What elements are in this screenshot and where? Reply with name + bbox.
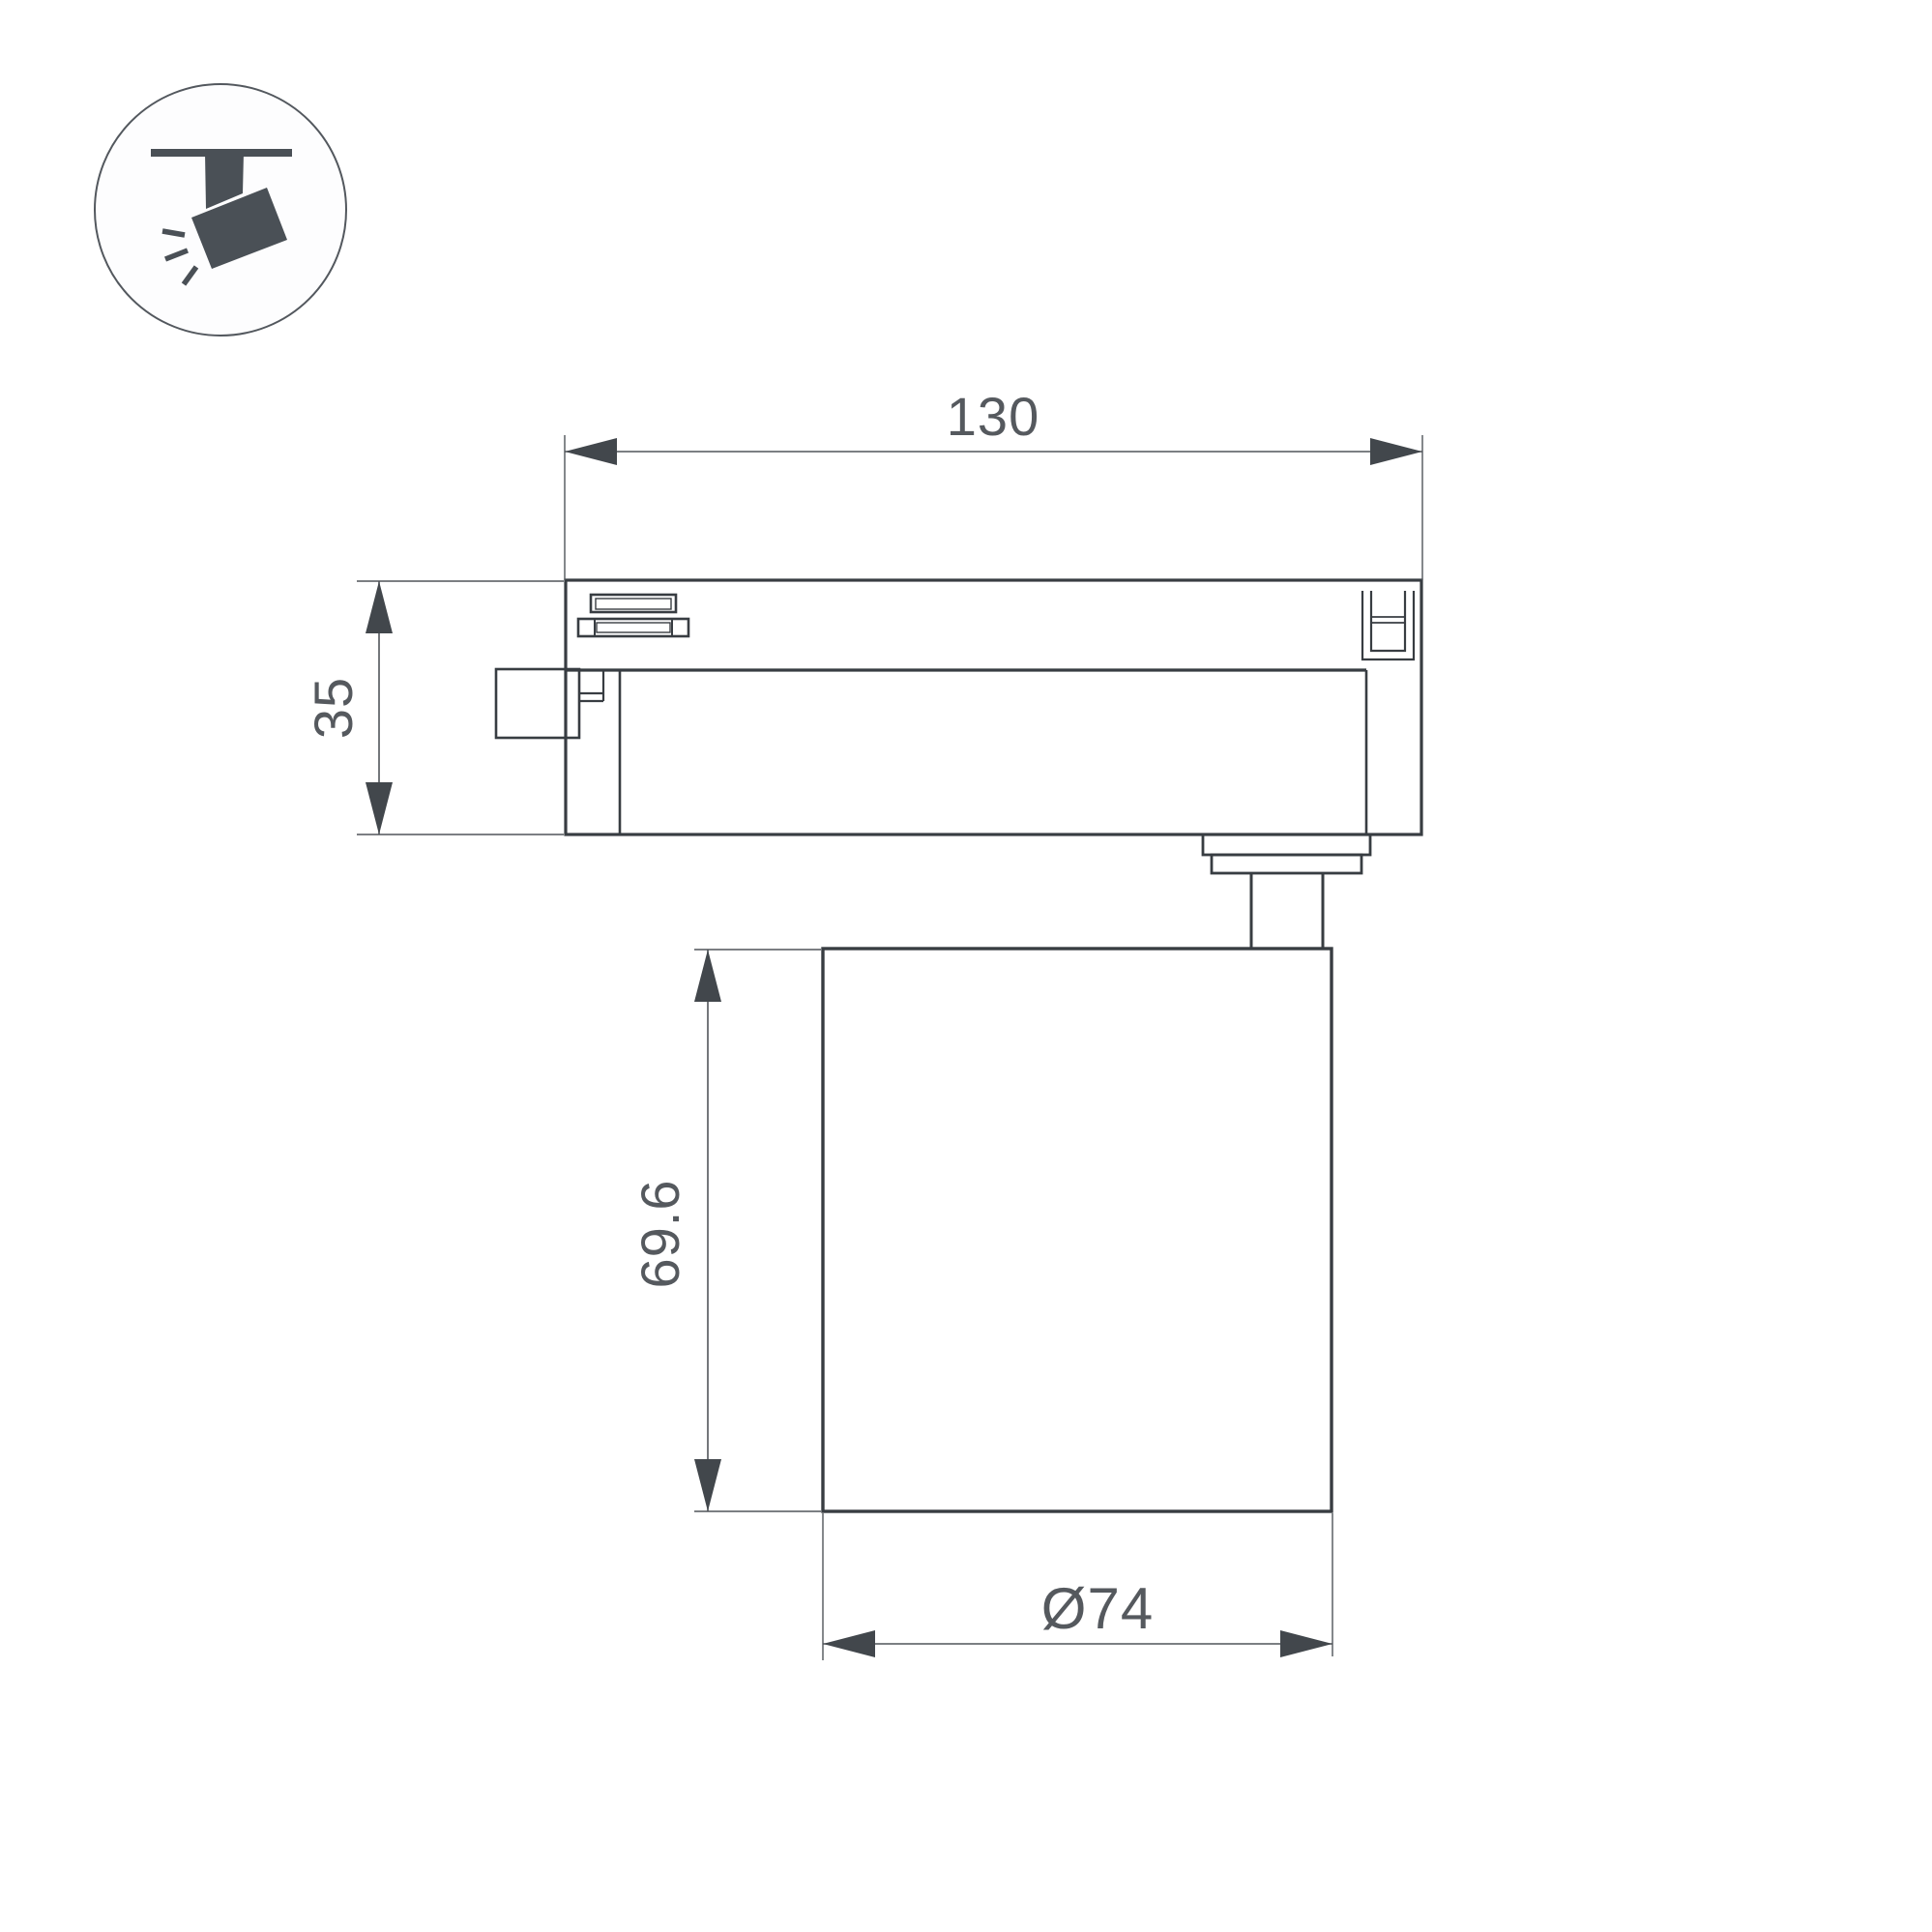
lamp-body bbox=[823, 949, 1332, 1511]
drawing-page: 130 35 69.6 bbox=[0, 0, 1932, 1932]
dimension-label-body-height: 69.6 bbox=[629, 1180, 690, 1289]
dimension-adapter-height: 35 bbox=[303, 581, 564, 834]
corner-icon bbox=[95, 84, 346, 336]
dimension-label-body-diameter: Ø74 bbox=[1041, 1576, 1154, 1641]
dimension-overall-width: 130 bbox=[565, 386, 1422, 580]
dimension-label-overall-width: 130 bbox=[947, 386, 1039, 447]
pivot-flange-lower bbox=[1212, 855, 1361, 873]
adapter-body bbox=[566, 580, 1421, 834]
technical-drawing: 130 35 69.6 bbox=[0, 0, 1932, 1932]
pivot-neck bbox=[1251, 873, 1323, 949]
track-connector bbox=[1362, 591, 1414, 659]
contact-slot-1 bbox=[591, 595, 676, 612]
fixture-outline bbox=[496, 580, 1421, 1511]
latch-detail bbox=[579, 670, 603, 701]
dimension-body-height: 69.6 bbox=[629, 950, 821, 1511]
dimensions: 130 35 69.6 bbox=[303, 386, 1422, 1660]
dimension-label-adapter-height: 35 bbox=[303, 677, 364, 739]
dimension-body-diameter: Ø74 bbox=[823, 1513, 1332, 1660]
contact-slot-2 bbox=[578, 619, 688, 636]
pivot-flange-upper bbox=[1203, 834, 1370, 855]
